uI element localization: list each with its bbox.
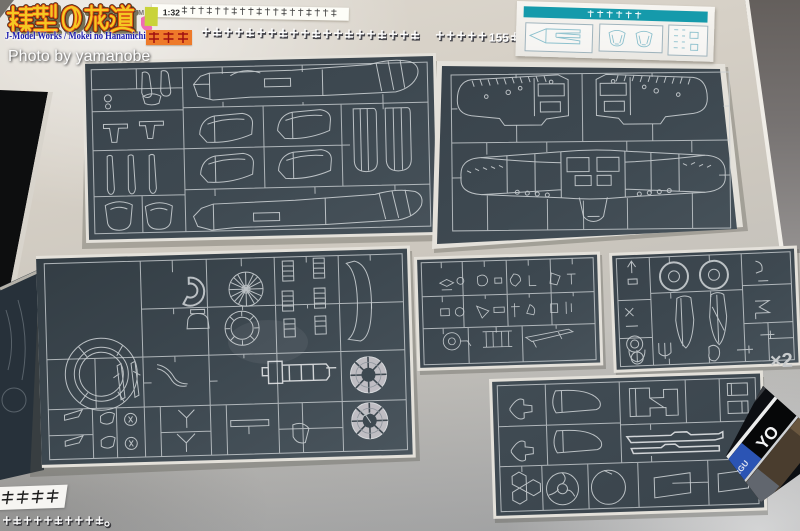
svg-text:155: 155 [489,31,510,45]
svg-text:TM: TM [134,10,144,17]
